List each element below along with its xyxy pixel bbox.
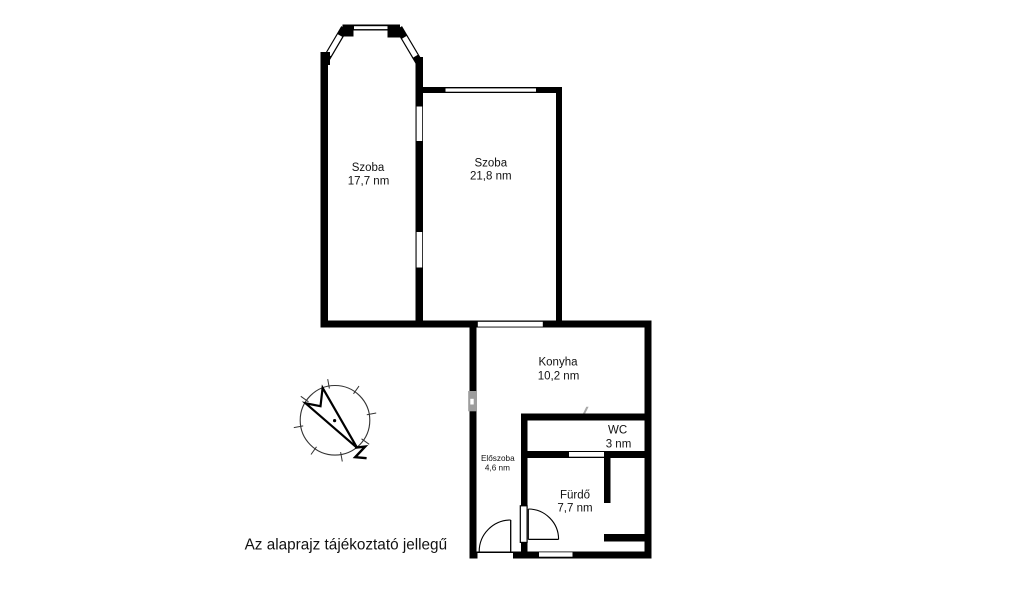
svg-text:4,6 nm: 4,6 nm [485,463,510,472]
svg-text:WC: WC [608,425,627,437]
svg-text:10,2 nm: 10,2 nm [538,370,580,382]
svg-text:Konyha: Konyha [538,356,578,368]
svg-text:Szoba: Szoba [474,158,507,170]
svg-text:Előszoba: Előszoba [481,454,515,463]
svg-text:17,7 nm: 17,7 nm [348,176,390,188]
svg-text:3 nm: 3 nm [606,438,632,450]
svg-text:Szoba: Szoba [352,162,385,174]
svg-text:21,8 nm: 21,8 nm [470,171,512,183]
svg-text:7,7 nm: 7,7 nm [557,502,592,514]
svg-text:Az alaprajz tájékoztató jelleg: Az alaprajz tájékoztató jellegű [245,536,448,553]
svg-text:Fürdő: Fürdő [560,489,590,501]
